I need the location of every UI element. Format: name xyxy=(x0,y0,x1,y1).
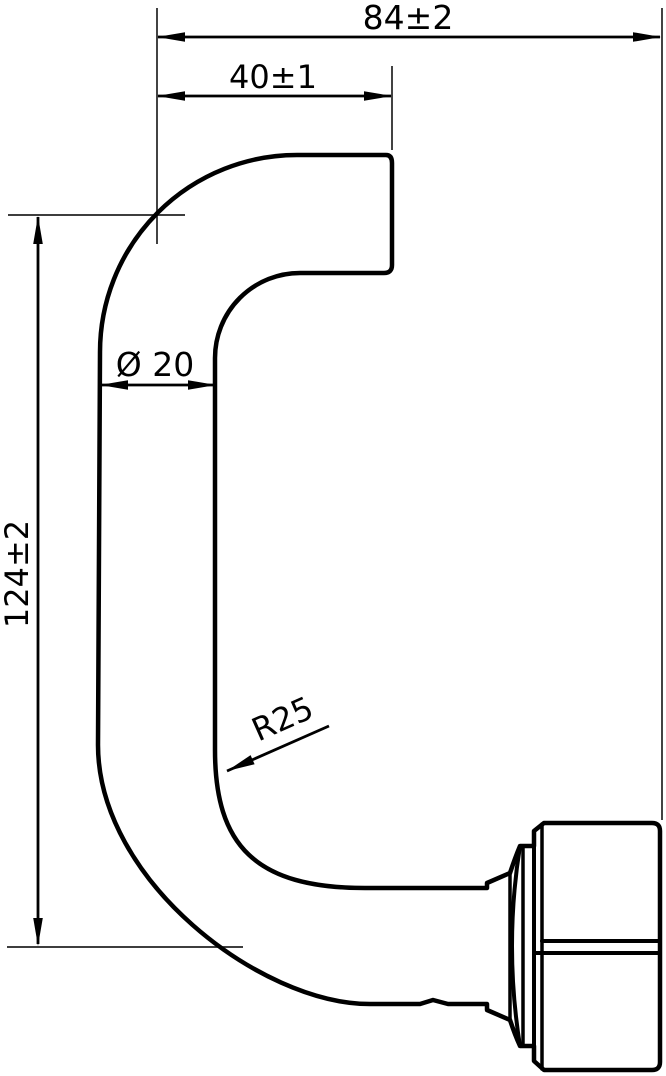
flange-ellipse-line xyxy=(512,846,520,1046)
arrowheads xyxy=(33,32,661,946)
technical-drawing-svg: 84±2 40±1 Ø 20 124±2 R25 xyxy=(0,0,666,1076)
arrow-offset-left-icon xyxy=(157,91,185,101)
arrow-height-bottom-icon xyxy=(33,918,43,946)
arrow-radius-icon xyxy=(227,755,255,771)
handle-outline-path xyxy=(98,155,660,1070)
arrow-width-left-icon xyxy=(157,32,185,42)
dimension-labels: 84±2 40±1 Ø 20 124±2 R25 xyxy=(0,0,453,749)
dim-tube-diameter-label: Ø 20 xyxy=(116,345,194,384)
dim-neck-offset-label: 40±1 xyxy=(229,58,317,96)
arrow-height-top-icon xyxy=(33,216,43,244)
handle-geometry xyxy=(98,155,660,1070)
dim-bend-radius-label: R25 xyxy=(246,689,319,749)
dimension-lines xyxy=(38,37,660,944)
drawing-canvas: 84±2 40±1 Ø 20 124±2 R25 xyxy=(0,0,666,1076)
dim-overall-width-label: 84±2 xyxy=(363,0,454,37)
dim-overall-height-label: 124±2 xyxy=(0,520,36,628)
arrow-offset-right-icon xyxy=(364,91,392,101)
arrow-width-right-icon xyxy=(633,32,661,42)
extension-lines xyxy=(7,8,662,947)
